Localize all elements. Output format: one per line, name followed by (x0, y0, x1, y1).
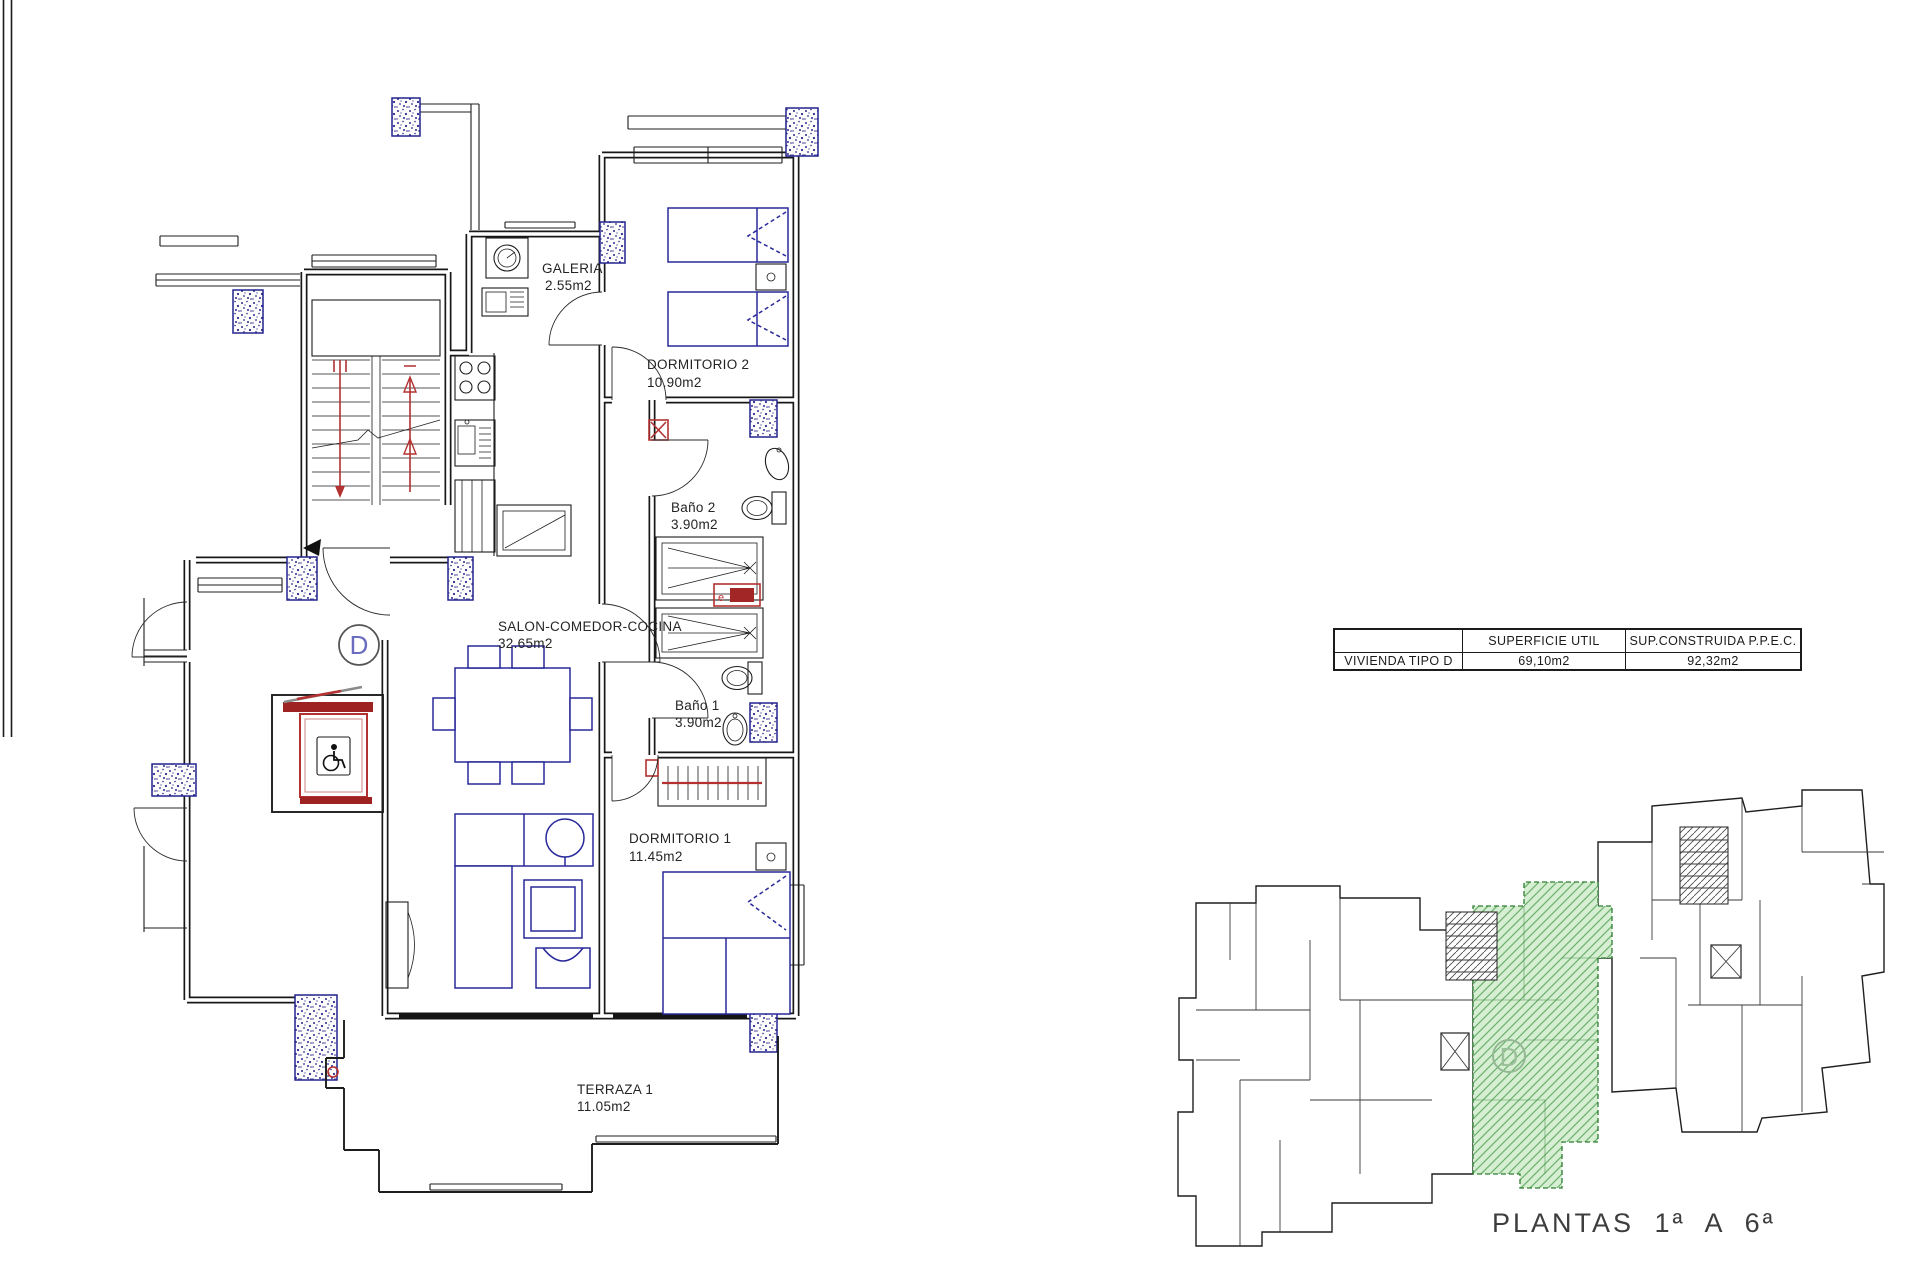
stair-core (1680, 827, 1728, 904)
kitchen-peninsula (497, 505, 571, 556)
elevator (272, 687, 383, 812)
toilet-bowl (742, 497, 772, 520)
label-dormitorio2: DORMITORIO 2 (647, 357, 749, 372)
tv-cabinet (386, 902, 415, 988)
unit-d-badge: D (339, 625, 379, 665)
south-sill (399, 1013, 593, 1020)
label-terraza: TERRAZA 1 (577, 1082, 653, 1097)
bed-single-1 (668, 208, 788, 262)
header-empty (1334, 629, 1463, 653)
label-salon: SALON-COMEDOR-COCINA (498, 619, 682, 634)
header-superficie-util: SUPERFICIE UTIL (1463, 629, 1626, 653)
galeria-fixtures (482, 238, 528, 316)
wardrobe (646, 758, 766, 806)
bed-single-2 (668, 292, 788, 346)
label-salon-area: 32.65m2 (498, 636, 553, 651)
stair-direction-arrows (334, 360, 416, 498)
shower-stalls: e (656, 537, 763, 658)
water-heater: e (714, 584, 760, 606)
stair-steps (312, 356, 440, 505)
label-terraza-area: 11.05m2 (577, 1099, 631, 1114)
bano2-fixtures (742, 445, 792, 524)
armchair (536, 948, 590, 988)
overview-unit-d-letter: D (1500, 1042, 1519, 1072)
table-header-row: SUPERFICIE UTIL SUP.CONSTRUIDA P.P.E.C. (1334, 629, 1801, 653)
overview-key-plan: D PLANTAS 1ª A 6ª (1178, 790, 1884, 1246)
label-dormitorio1-area: 11.45m2 (629, 849, 683, 864)
dormitorio1-furniture (663, 843, 790, 1014)
nightstand (756, 264, 786, 290)
surface-summary-table: SUPERFICIE UTIL SUP.CONSTRUIDA P.P.E.C. … (1333, 628, 1802, 671)
kitchen-appliances (455, 353, 571, 556)
heater-label: e (718, 592, 724, 604)
cell-superficie-util: 69,10m2 (1463, 653, 1626, 671)
label-bano2-area: 3.90m2 (671, 517, 718, 532)
wheelchair-icon (317, 737, 350, 775)
label-bano1-area: 3.90m2 (675, 715, 722, 730)
floor-lamp (546, 819, 584, 857)
label-galeria: GALERIA (542, 261, 603, 276)
cell-vivienda-tipo: VIVIENDA TIPO D (1334, 653, 1463, 671)
nightstand (756, 843, 786, 870)
header-sup-construida: SUP.CONSTRUIDA P.P.E.C. (1626, 629, 1802, 653)
coffee-table (524, 880, 582, 938)
label-galeria-area: 2.55m2 (545, 278, 592, 293)
fridge (455, 480, 495, 552)
terrace (326, 1020, 778, 1192)
door-swings (132, 292, 708, 861)
page-border (4, 0, 12, 737)
toilet-tank (748, 662, 762, 694)
dining-table (455, 668, 570, 762)
label-dormitorio2-area: 10.90m2 (647, 375, 702, 390)
sofa-chaise (455, 866, 512, 988)
label-bano1: Baño 1 (675, 698, 720, 713)
overview-left-wing (1178, 886, 1473, 1246)
stairwell (312, 300, 440, 505)
toilet-tank (772, 492, 786, 524)
table-row: VIVIENDA TIPO D 69,10m2 92,32m2 (1334, 653, 1801, 671)
sofa-set (455, 814, 593, 988)
cell-sup-construida: 92,32m2 (1626, 653, 1802, 671)
main-floor-plan: e (132, 98, 818, 1192)
label-bano2: Baño 2 (671, 500, 716, 515)
unit-d-letter: D (350, 630, 369, 660)
stove (455, 356, 495, 400)
overview-caption: PLANTAS 1ª A 6ª (1492, 1208, 1776, 1238)
stair-core (1446, 912, 1497, 980)
dining-set (433, 646, 592, 784)
salon-furniture (386, 646, 593, 988)
drawing-sheet: e (0, 0, 1920, 1280)
label-dormitorio1: DORMITORIO 1 (629, 831, 731, 846)
